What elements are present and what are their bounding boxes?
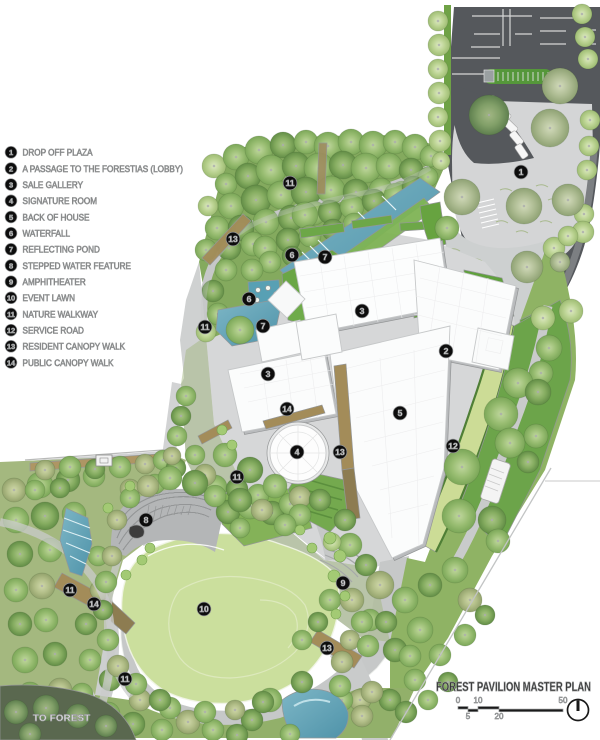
svg-text:DROP OFF PLAZA: DROP OFF PLAZA [23, 147, 93, 158]
svg-text:2: 2 [444, 346, 449, 356]
svg-text:1: 1 [519, 167, 524, 177]
svg-text:13: 13 [7, 342, 15, 351]
svg-text:6: 6 [247, 294, 252, 304]
svg-text:BACK OF HOUSE: BACK OF HOUSE [23, 212, 90, 223]
svg-text:20: 20 [495, 712, 504, 721]
svg-text:3: 3 [360, 306, 365, 316]
svg-text:13: 13 [228, 234, 238, 244]
svg-text:2: 2 [9, 164, 13, 173]
svg-text:8: 8 [144, 515, 149, 525]
svg-text:EVENT LAWN: EVENT LAWN [23, 292, 75, 303]
svg-text:8: 8 [9, 261, 13, 270]
svg-text:13: 13 [322, 643, 332, 653]
svg-text:SERVICE ROAD: SERVICE ROAD [23, 325, 84, 336]
svg-text:3: 3 [9, 180, 13, 189]
svg-text:11: 11 [200, 322, 209, 332]
svg-text:10: 10 [474, 696, 483, 705]
svg-text:7: 7 [323, 252, 328, 262]
svg-text:SALE GALLERY: SALE GALLERY [23, 179, 84, 190]
svg-text:11: 11 [232, 472, 241, 482]
svg-text:9: 9 [9, 278, 13, 287]
svg-text:5: 5 [9, 213, 13, 222]
svg-text:FOREST PAVILION MASTER PLAN: FOREST PAVILION MASTER PLAN [436, 680, 591, 694]
svg-text:5: 5 [398, 408, 403, 418]
svg-text:SIGNATURE ROOM: SIGNATURE ROOM [23, 195, 98, 206]
svg-text:0: 0 [456, 696, 461, 705]
svg-text:TO FOREST: TO FOREST [33, 713, 90, 724]
svg-text:STEPPED WATER FEATURE: STEPPED WATER FEATURE [23, 260, 131, 271]
svg-text:50: 50 [559, 696, 568, 705]
svg-text:AMPHITHEATER: AMPHITHEATER [23, 276, 87, 287]
svg-text:PUBLIC CANOPY WALK: PUBLIC CANOPY WALK [23, 357, 114, 368]
svg-text:12: 12 [448, 441, 458, 451]
svg-text:11: 11 [7, 310, 15, 319]
svg-text:12: 12 [7, 326, 15, 335]
svg-text:14: 14 [282, 404, 292, 414]
svg-text:14: 14 [89, 599, 99, 609]
svg-text:3: 3 [266, 369, 271, 379]
svg-text:4: 4 [295, 447, 300, 457]
svg-text:7: 7 [261, 321, 266, 331]
svg-text:11: 11 [65, 585, 74, 595]
svg-text:10: 10 [7, 294, 15, 303]
svg-text:REFLECTING POND: REFLECTING POND [23, 244, 100, 255]
svg-text:10: 10 [199, 604, 209, 614]
svg-text:6: 6 [9, 229, 13, 238]
svg-text:WATERFALL: WATERFALL [23, 228, 71, 239]
svg-text:7: 7 [9, 245, 13, 254]
svg-text:13: 13 [335, 447, 345, 457]
svg-text:RESIDENT CANOPY WALK: RESIDENT CANOPY WALK [23, 341, 126, 352]
svg-text:1: 1 [9, 148, 13, 157]
svg-text:9: 9 [341, 578, 346, 588]
svg-text:11: 11 [120, 674, 129, 684]
svg-text:NATURE WALKWAY: NATURE WALKWAY [23, 309, 99, 320]
svg-text:14: 14 [7, 358, 16, 367]
svg-text:A PASSAGE TO THE FORESTIAS (LO: A PASSAGE TO THE FORESTIAS (LOBBY) [23, 163, 184, 174]
svg-text:5: 5 [466, 712, 471, 721]
svg-text:6: 6 [290, 250, 295, 260]
svg-text:11: 11 [285, 178, 294, 188]
